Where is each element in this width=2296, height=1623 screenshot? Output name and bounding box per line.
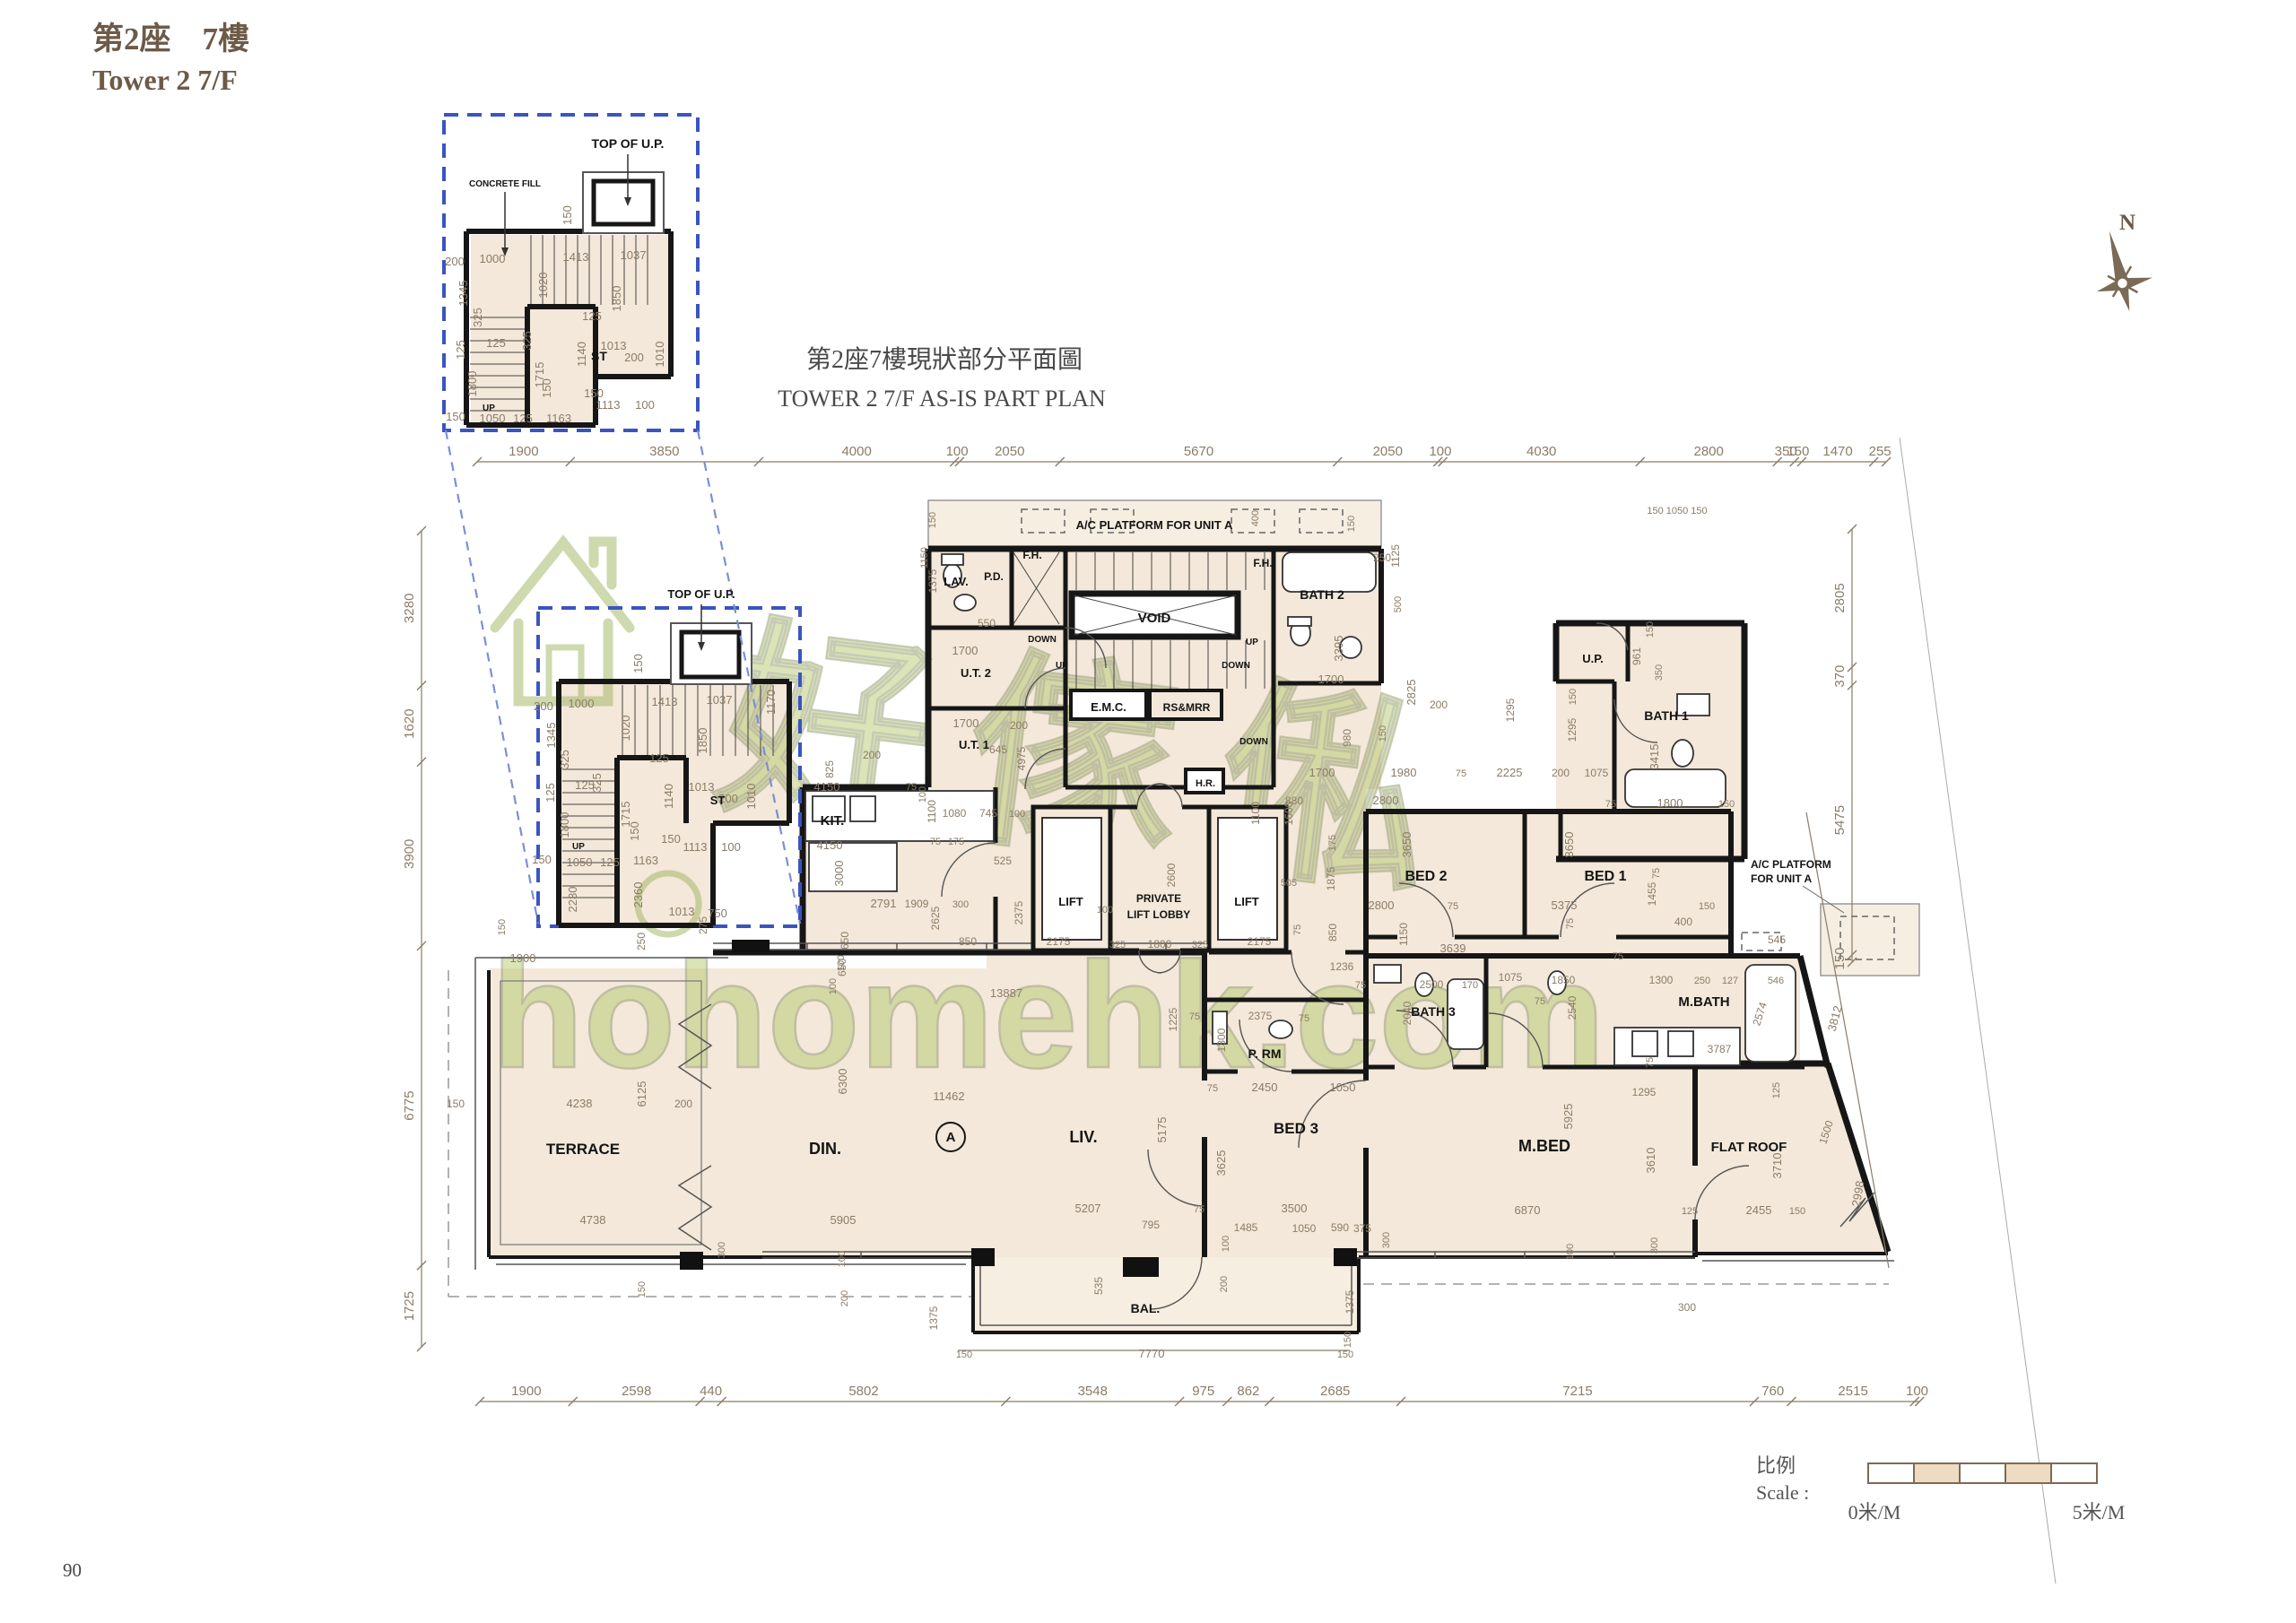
floorplan-page: { "title": {"zh": "第2座 7樓", "en": "Tower…: [0, 0, 2296, 1623]
room-label: E.M.C.: [1091, 700, 1126, 714]
dim-chain-left: 32801620390067751725: [402, 526, 426, 1351]
plan-title-en: TOWER 2 7/F AS-IS PART PLAN: [778, 386, 1106, 412]
dim-label: 1413: [652, 695, 678, 708]
room-label: BED 1: [1584, 869, 1626, 884]
chain-dim: 1900: [511, 1384, 541, 1399]
dim-label: 100: [721, 840, 741, 854]
room-label: U.P.: [1582, 652, 1604, 665]
floorplan-canvas: 好傢俬 hohomehk.com: [0, 0, 2296, 1623]
dim-label: 125: [600, 855, 620, 869]
room-label: A/C PLATFORM FOR UNIT A: [1076, 518, 1233, 532]
chain-dim: 100: [946, 444, 969, 459]
dim-label: 1700: [1309, 766, 1335, 779]
dim-label: 1010: [744, 784, 758, 810]
dim-label: 2625: [929, 906, 942, 930]
dim-label: 525: [994, 855, 1012, 867]
dim-label: 300: [952, 899, 969, 910]
dim-label: 5207: [1075, 1202, 1101, 1215]
dim-label: 2540: [1566, 995, 1578, 1020]
chain-dim: 2800: [1694, 444, 1724, 459]
dim-label: 1800: [558, 812, 571, 838]
dim-label: 75: [1355, 980, 1366, 991]
room-label: UP: [572, 842, 585, 852]
dim-label: 150: [628, 821, 641, 841]
dim-label: 1345: [544, 723, 558, 749]
dim-label: 546: [1768, 976, 1784, 986]
dim-label: 1163: [546, 412, 571, 425]
chain-dim: 100: [1429, 444, 1451, 459]
chain-dim: 3850: [649, 444, 679, 459]
dim-label: 6870: [1515, 1203, 1541, 1217]
dim-label: 150: [1568, 689, 1578, 705]
dim-label: 2225: [1497, 766, 1523, 779]
page-number: 90: [63, 1559, 82, 1581]
dim-label: 200: [1010, 719, 1028, 732]
dim-label: 2175: [1248, 935, 1272, 948]
chain-dim: 3900: [402, 839, 417, 869]
dim-label: 150: [446, 410, 465, 423]
chain-dim: 5802: [848, 1384, 878, 1399]
dim-label: 75: [930, 837, 941, 847]
dim-label: 150: [1378, 725, 1388, 742]
dim-label: 150 1050 150: [1647, 506, 1707, 516]
dim-label: 75: [1456, 768, 1466, 779]
dim-label: 150: [1789, 1206, 1805, 1217]
room-label: LIFT: [1234, 895, 1258, 908]
room-label: BATH 2: [1300, 587, 1344, 602]
dim-label: 125: [1771, 1082, 1782, 1098]
dim-label: 1800: [1657, 796, 1683, 810]
dim-label: 250: [635, 933, 648, 950]
dim-label: 150: [1718, 799, 1735, 810]
dim-label: 1485: [1234, 1221, 1258, 1234]
dim-label: 1140: [575, 342, 588, 367]
dim-label: 75: [1605, 799, 1616, 810]
dim-label: 150: [631, 654, 645, 673]
room-label: UP: [1246, 638, 1258, 647]
dim-label: 150: [1337, 1350, 1353, 1360]
dim-label: 1113: [596, 398, 621, 412]
room-label: U.T. 1: [959, 738, 989, 751]
room-label: U.T. 2: [961, 666, 991, 680]
dim-label: 1700: [952, 644, 978, 657]
dim-label: 4150: [817, 838, 843, 852]
room-label: ST: [710, 794, 726, 807]
dim-label: 3625: [1214, 1150, 1228, 1176]
dim-label: 400: [1674, 916, 1692, 928]
dim-label: 250: [1694, 976, 1710, 986]
dim-label: 7770: [1139, 1347, 1165, 1360]
dim-label: 2800: [1373, 794, 1399, 807]
dim-label: 200: [1430, 699, 1448, 711]
dim-label: 1225: [1167, 1007, 1179, 1031]
dim-label: 2825: [1405, 680, 1418, 706]
dim-label: 75: [1299, 1013, 1309, 1024]
dim-label: 3500: [1282, 1202, 1308, 1215]
dim-label: 500: [1393, 596, 1404, 612]
dim-label: 300: [1649, 1237, 1660, 1254]
dim-label: 1455: [1646, 881, 1658, 906]
dim-label: 75: [1194, 1204, 1205, 1215]
dim-label: 150: [661, 832, 681, 846]
dim-label: 11462: [933, 1089, 964, 1103]
dim-label: 125: [486, 336, 506, 350]
room-label: FOR UNIT A: [1751, 872, 1813, 885]
chain-dim: 370: [1832, 665, 1848, 688]
chain-dim: 4000: [841, 444, 871, 459]
room-label: DOWN: [1222, 661, 1250, 671]
dim-label: 1150: [919, 547, 930, 568]
chain-dim: 2050: [1373, 444, 1403, 459]
dim-label: 1300: [1649, 974, 1674, 986]
dim-label: 545: [1768, 933, 1786, 946]
dim-label: 150: [561, 205, 574, 225]
dim-label: 1295: [1632, 1086, 1657, 1098]
dim-label: 150: [447, 1098, 465, 1110]
room-label: M.BATH: [1678, 994, 1729, 1010]
dim-label: 200: [674, 1098, 692, 1110]
chain-dim: 1470: [1822, 444, 1852, 459]
chain-dim: 862: [1237, 1384, 1259, 1399]
dim-label: 2791: [871, 897, 897, 910]
room-label: KIT.: [821, 813, 845, 829]
dim-label: 1800: [465, 371, 479, 397]
room-label: LIFT LOBBY: [1127, 908, 1191, 921]
dim-label: 300: [1678, 1301, 1696, 1314]
dim-label: 100: [1221, 1236, 1231, 1252]
dim-label: 3650: [1562, 832, 1576, 858]
dim-label: 175: [1327, 835, 1338, 851]
dim-label: 325: [471, 308, 484, 327]
dim-label: 150: [540, 378, 553, 398]
dim-label: 3812: [1825, 1004, 1845, 1033]
chain-dim: 5475: [1832, 805, 1848, 835]
dim-label: 100: [837, 1251, 848, 1267]
dim-label: 1700: [1318, 673, 1344, 686]
dim-label: 150: [1343, 1332, 1353, 1348]
dim-label: 200: [534, 699, 553, 713]
dim-label: 1295: [1504, 698, 1517, 722]
chain-dim: 975: [1192, 1384, 1214, 1399]
plan-title-zh: 第2座7樓現狀部分平面圖: [806, 345, 1083, 374]
room-label: BED 3: [1274, 1120, 1318, 1137]
dim-label: 6125: [635, 1081, 648, 1107]
dim-label: 1050: [1292, 1222, 1317, 1235]
dim-label: 1980: [1391, 766, 1417, 779]
chain-dim: 1725: [402, 1291, 417, 1321]
dim-label: 200: [445, 255, 465, 268]
dim-label: 1050: [480, 412, 506, 425]
dim-label: 1080: [943, 807, 967, 820]
chain-dim: 7215: [1562, 1384, 1592, 1399]
dim-label: 200: [863, 749, 881, 761]
room-label: FLAT ROOF: [1711, 1140, 1787, 1155]
dim-label: 125: [649, 751, 669, 765]
chain-dim: 6775: [402, 1090, 417, 1120]
room-label: LIFT: [1058, 895, 1083, 908]
dim-label: 1020: [619, 716, 632, 742]
dim-label: 3395: [1332, 636, 1345, 662]
dim-label: 75: [1292, 924, 1303, 935]
bathtub-bath2: [1283, 552, 1376, 592]
chain-dim: 2805: [1832, 583, 1848, 612]
dim-label: 350: [1654, 664, 1665, 681]
dim-label: 1375: [927, 1306, 940, 1330]
dim-label: 850: [959, 935, 977, 948]
dim-label: 1800: [1148, 938, 1172, 950]
dim-label: 1413: [563, 250, 589, 264]
room-label: RS&MRR: [1163, 701, 1211, 714]
dim-label: 1850: [610, 286, 623, 312]
dim-label: 1375: [926, 568, 939, 593]
room-label: M.BED: [1518, 1137, 1570, 1155]
room-label: LIV.: [1069, 1128, 1097, 1146]
dim-label: 1300: [1215, 1028, 1228, 1052]
chain-dim: 1620: [402, 708, 417, 738]
room-label: DIN.: [809, 1140, 841, 1158]
dim-label: 1037: [707, 693, 733, 707]
dim-label: 2375: [1013, 900, 1025, 924]
dim-label: 150: [956, 1350, 972, 1360]
dim-label: 75: [1535, 996, 1545, 1007]
room-label: F.H.: [1022, 549, 1041, 561]
dim-label: 1850: [1552, 974, 1576, 986]
dim-chain-top: 1900385040001002050567020501004030280035…: [473, 444, 1892, 466]
dim-label: 5905: [831, 1213, 857, 1227]
room-label: PRIVATE: [1136, 892, 1181, 905]
dim-label: 750: [708, 907, 727, 920]
page-title-en: Tower 2 7/F: [92, 64, 238, 96]
scale-bar: 比例 Scale : 0米/M 5米/M: [1756, 1454, 2125, 1523]
dim-label: 3787: [1708, 1043, 1732, 1055]
dim-chain-bottom: 1900259844058023548975862268572157602515…: [475, 1384, 1928, 1406]
dim-label: 100: [828, 978, 839, 994]
dim-label: 275: [697, 916, 709, 934]
dim-label: 961: [1631, 647, 1643, 665]
dim-label: 100: [836, 955, 847, 971]
dim-label: 2360: [631, 882, 645, 908]
dim-label: 1113: [683, 840, 708, 854]
chain-dim: 760: [1761, 1384, 1784, 1399]
dim-label: 125: [544, 783, 557, 803]
room-label: BED 2: [1405, 869, 1447, 884]
dim-label: 325: [520, 331, 534, 351]
dim-label: 150: [532, 853, 552, 866]
dim-label: 75: [1651, 868, 1662, 879]
dim-label: 13887: [990, 986, 1022, 1000]
room-label: BATH 3: [1411, 1004, 1456, 1019]
dim-label: 3000: [832, 861, 846, 887]
chain-dim: 255: [1869, 444, 1892, 459]
dim-label: 3610: [1644, 1148, 1657, 1174]
dim-label: 825: [823, 760, 836, 778]
dim-label: 1100: [1249, 802, 1262, 825]
dim-label: 1075: [1499, 971, 1523, 984]
room-label: ST: [591, 349, 607, 363]
dim-label: 1170: [764, 690, 778, 715]
chain-dim: 100: [1906, 1384, 1928, 1399]
room-label: A/C PLATFORM: [1751, 858, 1831, 871]
dim-label: 1125: [1389, 544, 1402, 568]
dim-label: 75: [1565, 918, 1576, 929]
dim-label: 200: [1552, 767, 1570, 779]
chain-dim: 150: [1787, 444, 1809, 459]
dim-label: 2375: [1248, 1010, 1273, 1022]
dim-label: 1295: [1566, 717, 1578, 742]
dim-label: 505: [1281, 878, 1297, 889]
dim-label: 3650: [1400, 832, 1413, 858]
chain-dim: 2515: [1838, 1384, 1867, 1399]
dim-label: 1909: [905, 898, 929, 910]
dim-label: 1050: [567, 855, 593, 869]
dim-label: 980: [1341, 729, 1353, 747]
north-arrow: N: [2083, 211, 2159, 317]
room-label: UP: [1056, 661, 1068, 671]
dim-label: 1140: [662, 784, 675, 809]
dim-label: 550: [978, 617, 996, 629]
chain-dim: 2598: [622, 1384, 651, 1399]
dim-label: 150: [927, 512, 938, 528]
chain-dim: 150: [1832, 947, 1848, 969]
dim-label: 125: [582, 309, 602, 323]
dim-label: 200: [1219, 1276, 1230, 1292]
chain-dim: 2050: [995, 444, 1024, 459]
dim-label: 590: [1331, 1221, 1349, 1234]
dim-label: 5925: [1561, 1104, 1575, 1130]
room-label: BATH 1: [1644, 708, 1689, 723]
room-label: CONCRETE FILL: [469, 179, 541, 189]
dim-label: 325: [1109, 940, 1126, 950]
chain-dim: 3280: [402, 594, 417, 623]
dim-label: 75: [1645, 1057, 1656, 1068]
dim-label: 150: [1699, 901, 1715, 912]
dim-label: 1850: [696, 728, 709, 754]
dim-label: 1163: [633, 854, 658, 867]
room-label: TOP OF U.P.: [592, 136, 665, 151]
dim-label: 1150: [1397, 923, 1410, 946]
dim-label: 1236: [1330, 960, 1354, 973]
chain-dim: 1900: [509, 444, 538, 459]
dim-label: 1600: [1283, 801, 1295, 825]
room-label: F.H.: [1253, 557, 1272, 569]
dim-label: 75: [906, 782, 917, 793]
dim-label: 4975: [1015, 746, 1028, 770]
room-label: H.R.: [1196, 778, 1215, 789]
dim-label: 400: [1250, 510, 1261, 526]
dim-label: 5375: [1552, 898, 1578, 912]
dim-label: 5175: [1155, 1117, 1169, 1143]
scale-label-zh: 比例: [1756, 1454, 1796, 1477]
dim-label: 1100: [926, 800, 938, 823]
inset-connector-left: [446, 430, 538, 924]
dim-chain-right: 28053705475150: [1832, 525, 1857, 970]
dim-label: 75: [1613, 951, 1623, 962]
grid-ref-a: A: [946, 1130, 956, 1145]
dim-label: 125: [513, 412, 533, 425]
dim-label: 100: [1009, 809, 1025, 820]
dim-label: 4150: [814, 780, 840, 794]
dim-label: 150: [497, 919, 508, 935]
dim-label: 150: [1645, 621, 1656, 638]
dim-label: 1375: [1344, 1289, 1356, 1314]
dim-label: 200: [839, 1290, 850, 1306]
house-icon: [495, 542, 630, 701]
scale-label-en: Scale :: [1756, 1481, 1809, 1504]
room-label: P. RM: [1248, 1046, 1281, 1061]
dim-label: 125: [454, 340, 467, 360]
chain-dim: 3548: [1078, 1384, 1108, 1399]
dim-label: 650: [839, 932, 851, 950]
dim-label: 2175: [1047, 935, 1071, 948]
dim-label: 3415: [1648, 744, 1661, 770]
dim-label: 6300: [836, 1069, 849, 1095]
dim-label: 375: [1353, 1222, 1371, 1235]
dim-label: 1050: [1330, 1081, 1356, 1094]
dim-label: 2455: [1746, 1203, 1772, 1217]
dim-label: 535: [1092, 1277, 1105, 1295]
dim-label: 1000: [480, 252, 506, 265]
scale-start: 0米/M: [1848, 1501, 1901, 1523]
room-label: LAV.: [944, 575, 968, 588]
dim-label: 2600: [1165, 863, 1178, 887]
dim-label: 325: [590, 773, 604, 793]
room-label: DOWN: [1028, 635, 1057, 645]
dim-label: 1345: [457, 281, 470, 307]
chain-dim: 2685: [1320, 1384, 1350, 1399]
room-label: DOWN: [1239, 737, 1268, 747]
dim-label: 745: [979, 807, 997, 820]
dim-label: 175: [948, 837, 964, 847]
dim-label: 1900: [510, 951, 536, 965]
dim-label: 325: [1192, 940, 1208, 950]
dim-label: 325: [558, 750, 571, 769]
chain-dim: 5670: [1184, 444, 1213, 459]
dim-label: 170: [1462, 980, 1478, 991]
dim-label: 100: [1565, 1244, 1576, 1260]
dim-label: 3639: [1440, 942, 1466, 955]
dim-label: 4738: [580, 1213, 606, 1227]
dim-label: 1013: [669, 905, 695, 918]
room-label: VOID: [1138, 611, 1171, 626]
dim-label: 100: [635, 398, 655, 412]
dim-label: 2230: [566, 887, 579, 913]
dim-label: 3710: [1770, 1153, 1784, 1179]
scale-end: 5米/M: [2073, 1501, 2126, 1523]
dim-label: 1020: [536, 273, 550, 299]
dim-label: 2500: [1420, 978, 1444, 991]
dim-label: 75: [1189, 1011, 1200, 1022]
dim-label: 4238: [567, 1097, 593, 1110]
room-label: P.D.: [984, 570, 1004, 583]
dim-label: 150: [1346, 516, 1357, 532]
dim-label: 200: [624, 351, 644, 364]
dim-label: 1013: [689, 780, 715, 794]
dim-label: 100: [1097, 905, 1113, 916]
north-label: N: [2119, 211, 2135, 235]
dim-label: 850: [1326, 924, 1339, 942]
room-label: TOP OF U.P.: [667, 587, 735, 601]
dim-label: 1075: [1585, 767, 1609, 779]
dim-label: 150: [637, 1281, 648, 1298]
chain-dim: 440: [700, 1384, 722, 1399]
dim-label: 1700: [953, 716, 979, 730]
dim-label: 1000: [569, 697, 595, 710]
room-label: UP: [483, 404, 495, 413]
dim-label: 795: [1142, 1219, 1160, 1231]
dim-label: 1037: [621, 248, 647, 262]
chain-dim: 4030: [1526, 444, 1556, 459]
page-title-zh: 第2座 7樓: [92, 22, 249, 56]
